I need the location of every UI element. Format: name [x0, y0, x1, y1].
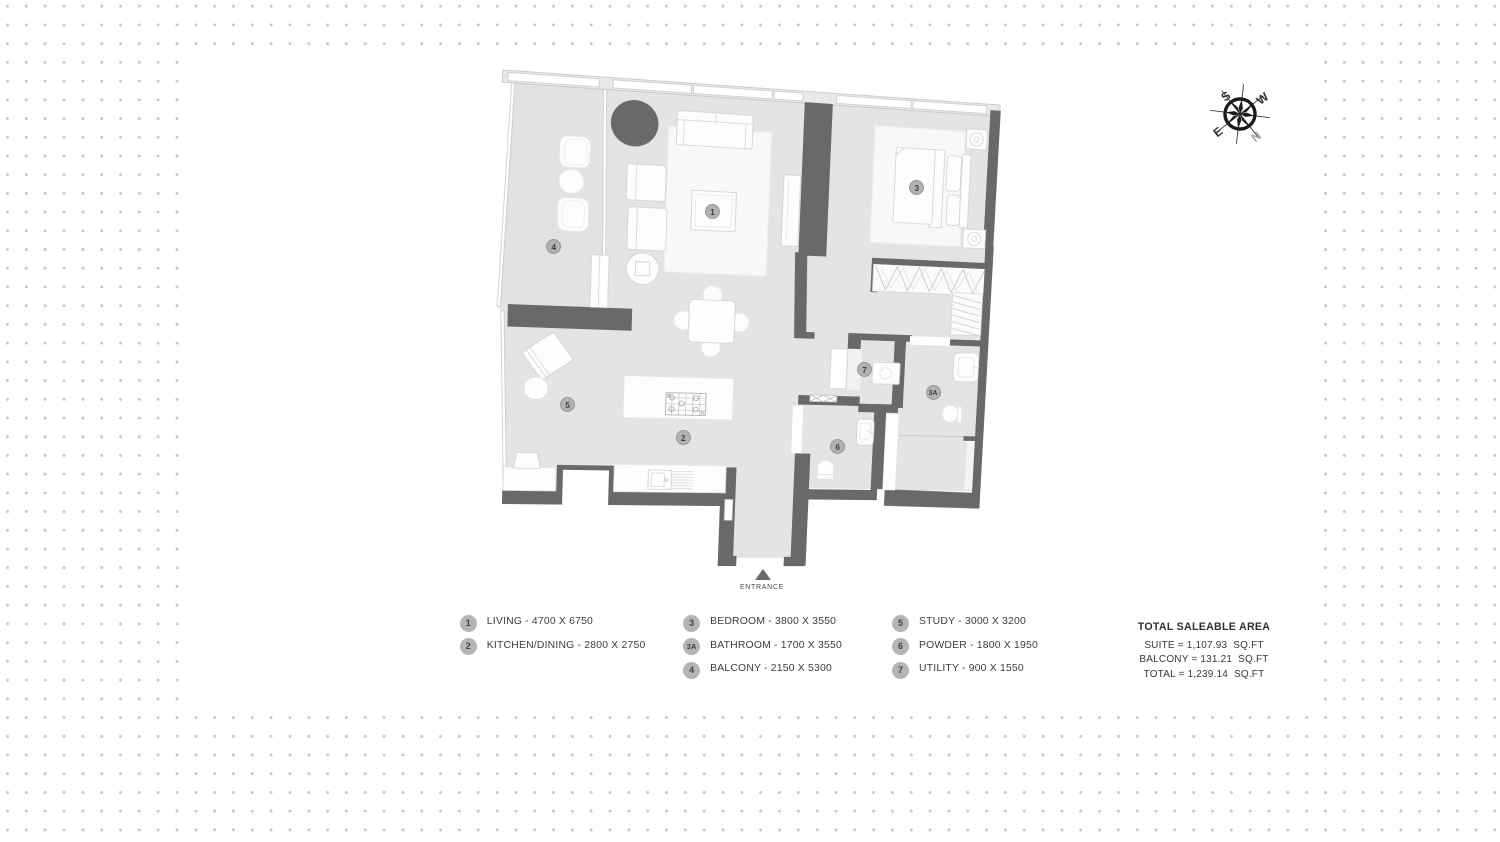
svg-text:W: W [1254, 89, 1272, 107]
svg-text:E: E [1211, 124, 1226, 140]
svg-text:N: N [1249, 129, 1264, 145]
